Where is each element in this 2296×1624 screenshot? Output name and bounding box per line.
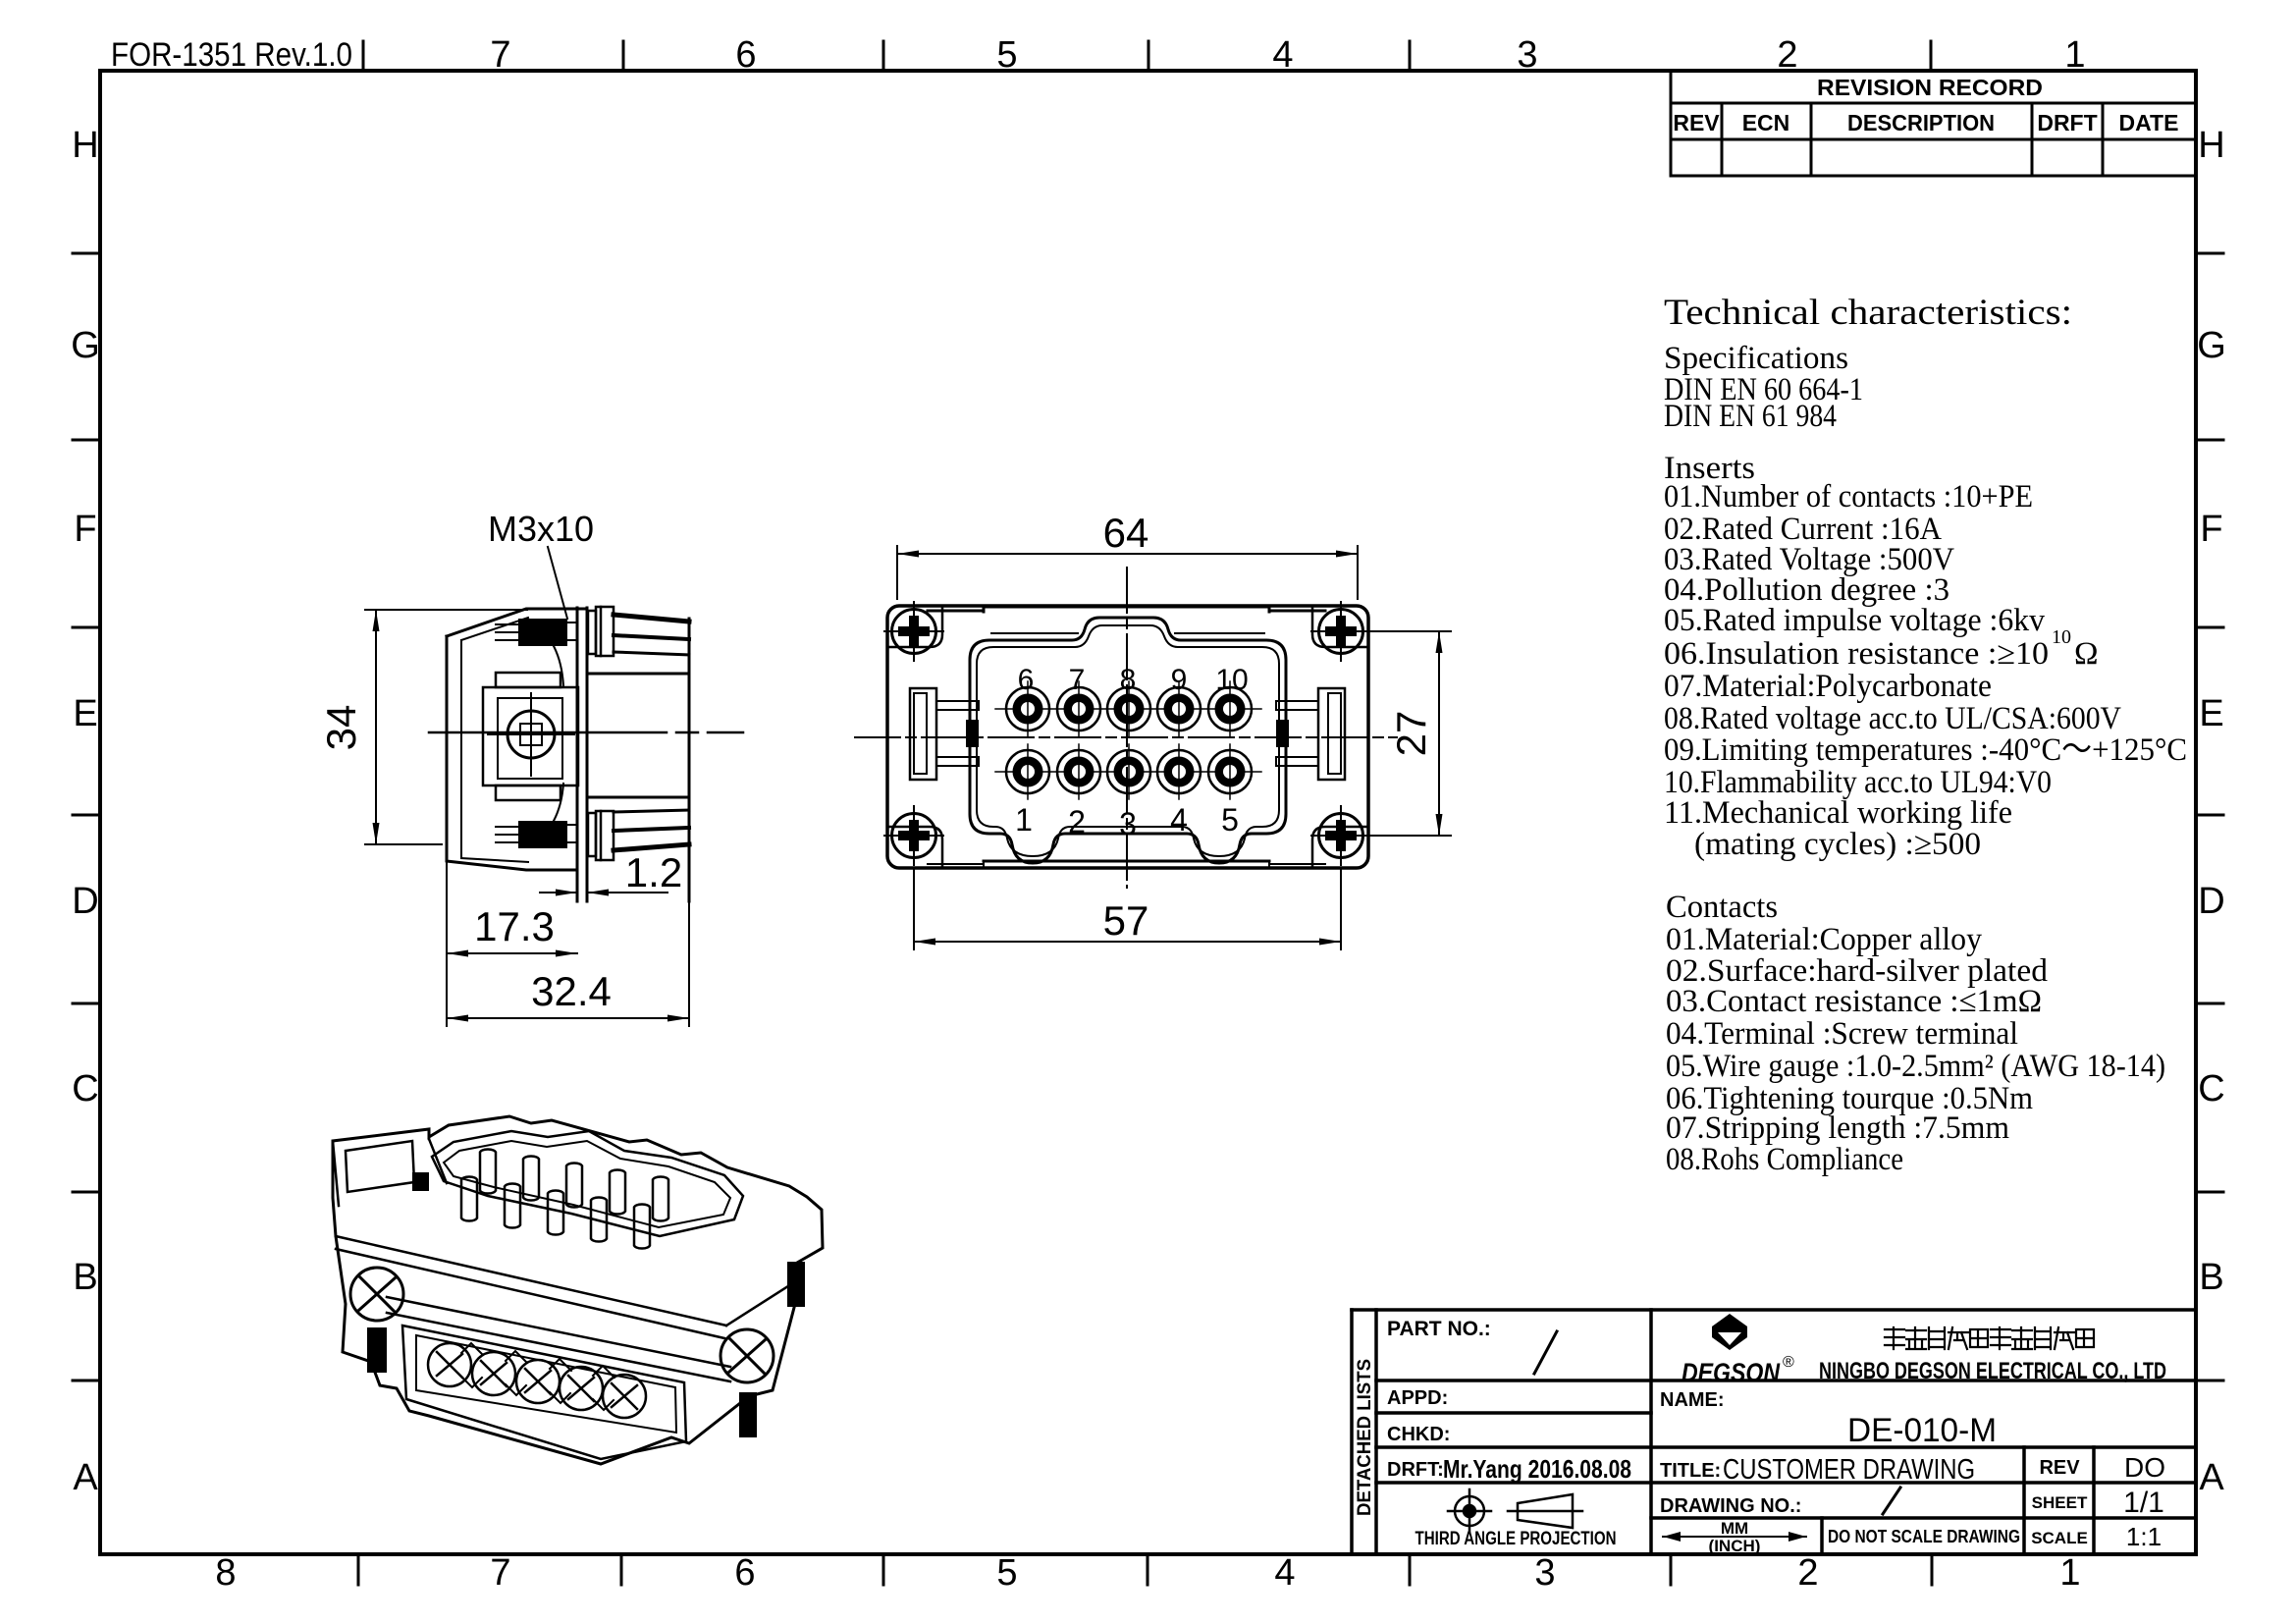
svg-text:10: 10: [2052, 626, 2071, 648]
svg-text:DO: DO: [2124, 1452, 2165, 1483]
svg-text:5: 5: [996, 1552, 1017, 1594]
svg-text:DETACHED LISTS: DETACHED LISTS: [1355, 1359, 1375, 1516]
svg-text:REV: REV: [1673, 110, 1720, 135]
svg-text:8: 8: [215, 1552, 236, 1594]
svg-text:1/1: 1/1: [2123, 1487, 2164, 1519]
svg-text:27: 27: [1388, 711, 1434, 757]
svg-text:05.Wire gauge :1.0-2.5mm² (AWG: 05.Wire gauge :1.0-2.5mm² (AWG 18-14): [1666, 1049, 2165, 1084]
svg-text:C: C: [72, 1068, 98, 1110]
svg-text:REV: REV: [2039, 1457, 2080, 1479]
svg-text:MM: MM: [1721, 1519, 1748, 1538]
svg-text:H: H: [72, 125, 98, 166]
svg-text:NINGBO DEGSON ELECTRICAL CO.,: NINGBO DEGSON ELECTRICAL CO., LTD: [1819, 1358, 2166, 1384]
svg-text:1: 1: [2064, 34, 2085, 76]
svg-text:Mr.Yang 2016.08.08: Mr.Yang 2016.08.08: [1443, 1454, 1631, 1484]
svg-text:DESCRIPTION: DESCRIPTION: [1847, 110, 1995, 135]
svg-text:Technical characteristics:: Technical characteristics:: [1664, 293, 2072, 333]
svg-text:4: 4: [1170, 802, 1188, 838]
svg-text:64: 64: [1103, 510, 1149, 556]
svg-text:DEGSON: DEGSON: [1682, 1358, 1780, 1387]
svg-text:PART NO.:: PART NO.:: [1387, 1318, 1491, 1340]
svg-text:57: 57: [1103, 897, 1149, 944]
svg-text:01.Number of contacts :10+PE: 01.Number of contacts :10+PE: [1664, 479, 2033, 514]
svg-text:Specifications: Specifications: [1664, 341, 1848, 376]
svg-text:DE-010-M: DE-010-M: [1847, 1412, 1997, 1449]
svg-text:F: F: [2200, 509, 2222, 550]
svg-text:B: B: [73, 1257, 97, 1298]
svg-text:C: C: [2198, 1068, 2224, 1110]
svg-text:3: 3: [1517, 34, 1537, 76]
svg-text:CHKD:: CHKD:: [1387, 1424, 1450, 1445]
svg-text:F: F: [74, 509, 96, 550]
svg-text:G: G: [2197, 325, 2226, 366]
svg-text:34: 34: [318, 705, 364, 751]
svg-text:CUSTOMER DRAWING: CUSTOMER DRAWING: [1723, 1454, 1975, 1486]
svg-text:E: E: [73, 693, 97, 734]
svg-text:4: 4: [1272, 34, 1293, 76]
svg-text:6: 6: [734, 1552, 755, 1594]
svg-text:A: A: [73, 1457, 98, 1498]
svg-text:7: 7: [1069, 664, 1086, 696]
svg-text:3: 3: [1534, 1552, 1555, 1594]
svg-text:08.Rohs Compliance: 08.Rohs Compliance: [1666, 1142, 1903, 1177]
svg-text:H: H: [2198, 125, 2224, 166]
svg-text:B: B: [2199, 1257, 2223, 1298]
svg-text:7: 7: [490, 1552, 510, 1594]
svg-text:2: 2: [1777, 34, 1797, 76]
svg-text:ECN: ECN: [1742, 110, 1790, 135]
svg-text:1:1: 1:1: [2126, 1522, 2162, 1551]
svg-text:1.2: 1.2: [625, 849, 682, 895]
svg-text:®: ®: [1783, 1354, 1794, 1371]
svg-text:(INCH): (INCH): [1709, 1537, 1761, 1555]
svg-text:32.4: 32.4: [531, 968, 612, 1014]
svg-text:A: A: [2199, 1457, 2224, 1498]
svg-text:M3x10: M3x10: [488, 509, 594, 549]
svg-text:D: D: [2198, 881, 2224, 922]
svg-text:05.Rated impulse voltage :6kv: 05.Rated impulse voltage :6kv: [1664, 603, 2045, 638]
svg-text:4: 4: [1274, 1552, 1295, 1594]
svg-text:09.Limiting temperatures :-40: 09.Limiting temperatures :-40°C～+125°C: [1664, 732, 2187, 768]
svg-text:Contacts: Contacts: [1666, 890, 1778, 925]
svg-text:7: 7: [490, 34, 510, 76]
svg-text:D: D: [72, 881, 98, 922]
svg-text:TITLE:: TITLE:: [1660, 1460, 1721, 1482]
svg-text:THIRD ANGLE PROJECTION: THIRD ANGLE PROJECTION: [1415, 1529, 1617, 1549]
svg-text:10: 10: [1215, 664, 1248, 696]
svg-text:DATE: DATE: [2119, 110, 2179, 135]
svg-text:DRFT: DRFT: [2037, 110, 2097, 135]
svg-text:07.Stripping length :7.5mm: 07.Stripping length :7.5mm: [1666, 1110, 2009, 1146]
svg-text:5: 5: [996, 34, 1017, 76]
svg-text:DRAWING NO.:: DRAWING NO.:: [1660, 1495, 1801, 1517]
svg-text:NAME:: NAME:: [1660, 1389, 1725, 1411]
svg-text:9: 9: [1171, 664, 1188, 696]
svg-text:17.3: 17.3: [474, 903, 555, 949]
svg-text:1: 1: [2059, 1552, 2080, 1594]
svg-text:SHEET: SHEET: [2032, 1493, 2088, 1512]
svg-text:07.Material:Polycarbonate: 07.Material:Polycarbonate: [1664, 669, 1992, 704]
svg-text:DO NOT SCALE DRAWING: DO NOT SCALE DRAWING: [1828, 1527, 2020, 1546]
svg-text:E: E: [2199, 693, 2223, 734]
svg-text:06.Insulation resistance :≥10: 06.Insulation resistance :≥10: [1664, 636, 2049, 672]
svg-text:1: 1: [1015, 802, 1033, 838]
svg-text:DRFT:: DRFT:: [1387, 1459, 1444, 1481]
svg-text:08.Rated voltage acc.to UL/CSA: 08.Rated voltage acc.to UL/CSA:600V: [1664, 701, 2121, 736]
svg-text:5: 5: [1221, 802, 1239, 838]
svg-text:6: 6: [1018, 664, 1035, 696]
svg-text:2: 2: [1068, 804, 1086, 839]
svg-text:G: G: [71, 325, 100, 366]
svg-text:FOR-1351 Rev.1.0: FOR-1351 Rev.1.0: [111, 36, 352, 74]
svg-text:(mating cycles) :≥500: (mating cycles) :≥500: [1694, 827, 1981, 862]
svg-text:DIN EN 61 984: DIN EN 61 984: [1664, 399, 1837, 434]
svg-text:01.Material:Copper alloy: 01.Material:Copper alloy: [1666, 922, 1982, 957]
svg-text:REVISION RECORD: REVISION RECORD: [1817, 75, 2043, 100]
svg-text:11.Mechanical working life: 11.Mechanical working life: [1664, 795, 2012, 831]
svg-text:04.Terminal :Screw terminal: 04.Terminal :Screw terminal: [1666, 1016, 2018, 1052]
svg-text:6: 6: [735, 34, 756, 76]
svg-text:2: 2: [1797, 1552, 1818, 1594]
svg-text:SCALE: SCALE: [2031, 1529, 2088, 1547]
svg-text:APPD:: APPD:: [1387, 1387, 1448, 1409]
svg-text:03.Contact resistance :≤1mΩ: 03.Contact resistance :≤1mΩ: [1666, 984, 2042, 1019]
svg-text:Ω: Ω: [2074, 636, 2099, 672]
